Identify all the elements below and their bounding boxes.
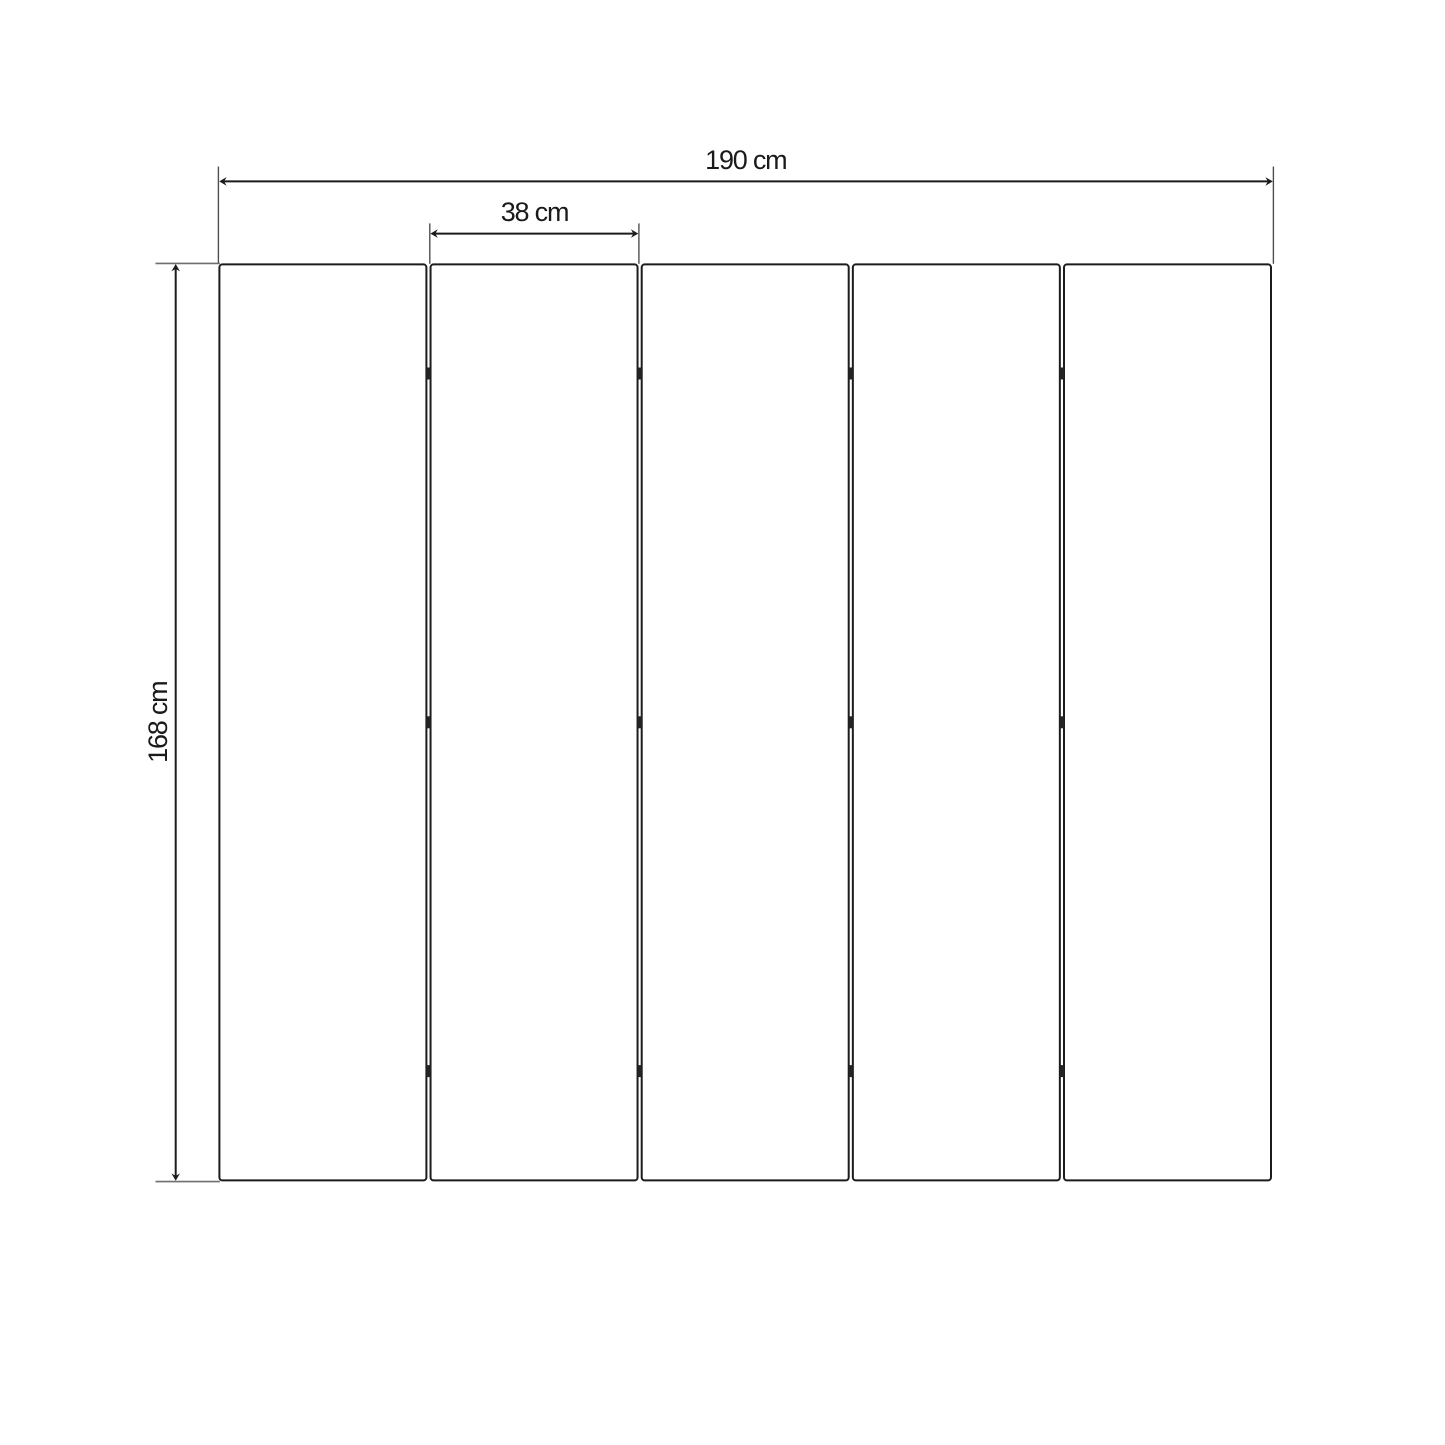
svg-text:190 cm: 190 cm: [705, 145, 786, 175]
svg-text:38 cm: 38 cm: [501, 197, 569, 227]
svg-text:168 cm: 168 cm: [143, 682, 173, 763]
